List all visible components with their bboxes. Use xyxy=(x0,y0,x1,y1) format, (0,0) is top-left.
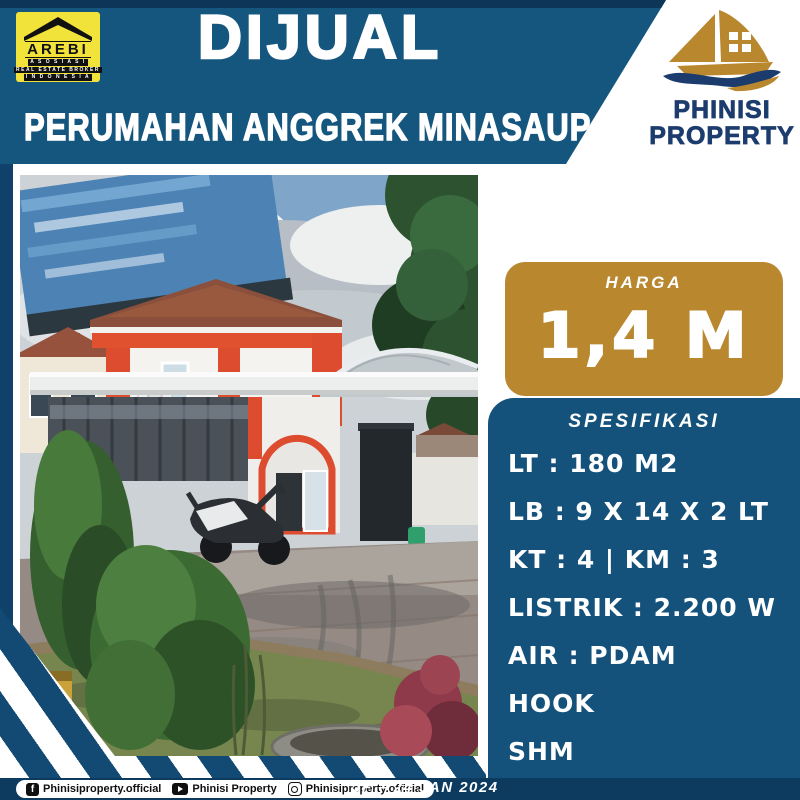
phinisi-name-line2: PROPERTY xyxy=(646,123,798,149)
date-code: JF – 24 JAN 2024 xyxy=(352,779,499,796)
ship-icon xyxy=(657,6,787,92)
stripe-band xyxy=(0,756,486,778)
youtube-icon xyxy=(172,783,188,795)
youtube-item: Phinisi Property xyxy=(172,783,276,795)
arebi-logo: AREBI A S O S I A S I REAL ESTATE BROKER… xyxy=(16,12,100,82)
spec-row-shm: SHM xyxy=(508,728,794,776)
arebi-roof-icon xyxy=(16,15,100,41)
price-value: 1,4 M xyxy=(505,299,783,372)
project-title: PERUMAHAN ANGGREK MINASAUPA xyxy=(24,106,612,150)
spec-panel: SPESIFIKASI LT : 180 M2 LB : 9 X 14 X 2 … xyxy=(488,398,800,800)
arebi-line3: I N D O N E S I A xyxy=(24,74,92,81)
house-photo xyxy=(20,175,478,756)
spec-row-listrik: LISTRIK : 2.200 W xyxy=(508,584,794,632)
instagram-icon xyxy=(288,782,302,796)
dijual-title: DIJUAL xyxy=(150,2,490,72)
phinisi-logo: PHINISI PROPERTY xyxy=(646,6,798,149)
arebi-line1: A S O S I A S I xyxy=(28,59,88,66)
spec-row-lb: LB : 9 X 14 X 2 LT xyxy=(508,488,794,536)
spec-list: LT : 180 M2 LB : 9 X 14 X 2 LT KT : 4 | … xyxy=(508,440,794,776)
price-label: HARGA xyxy=(505,273,783,293)
price-card: HARGA 1,4 M xyxy=(505,262,783,396)
arebi-line2: REAL ESTATE BROKER xyxy=(14,67,102,74)
phinisi-name-line1: PHINISI xyxy=(646,97,798,123)
facebook-item: f Phinisiproperty.official xyxy=(26,783,161,796)
youtube-handle: Phinisi Property xyxy=(192,783,276,795)
spec-row-hook: HOOK xyxy=(508,680,794,728)
facebook-handle: Phinisiproperty.official xyxy=(43,783,161,795)
footer-bar: f Phinisiproperty.official Phinisi Prope… xyxy=(0,778,800,800)
property-flyer: DIJUAL PERUMAHAN ANGGREK MINASAUPA AREBI… xyxy=(0,0,800,800)
arebi-name: AREBI xyxy=(25,41,91,58)
spec-heading: SPESIFIKASI xyxy=(488,411,800,433)
spec-row-kt-km: KT : 4 | KM : 3 xyxy=(508,536,794,584)
facebook-icon: f xyxy=(26,783,39,796)
spec-row-lt: LT : 180 M2 xyxy=(508,440,794,488)
spec-row-air: AIR : PDAM xyxy=(508,632,794,680)
